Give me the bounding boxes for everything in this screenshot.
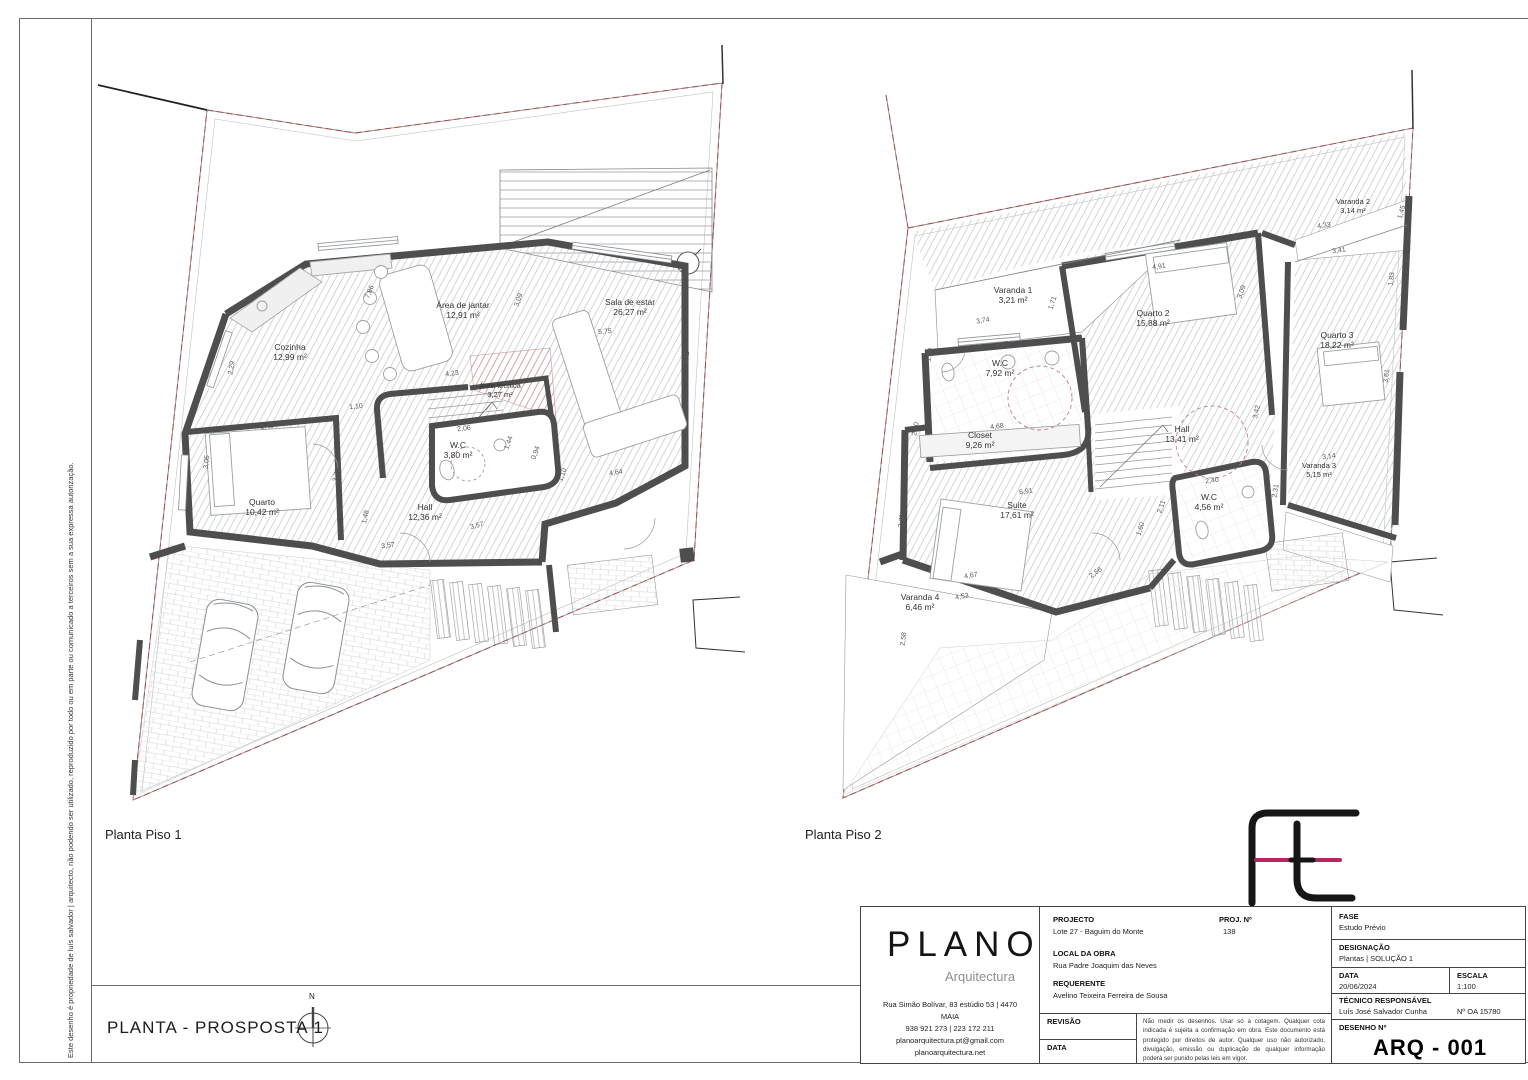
room-label: Hall12,36 m² — [408, 502, 442, 522]
data2-value: 20/06/2024 — [1339, 982, 1377, 991]
room-label: W.C4,56 m² — [1195, 492, 1224, 512]
room-label: Hall13,41 m² — [1165, 424, 1199, 444]
room-label: Suite17,61 m² — [1000, 500, 1034, 520]
plan1-garage-paving — [133, 545, 430, 797]
fase-label: FASE — [1339, 912, 1359, 921]
local-value: Rua Padre Joaquim das Neves — [1053, 961, 1157, 970]
title-block: PLANO Arquitectura Rua Simão Bolívar, 83… — [860, 906, 1526, 1064]
designacao-value: Plantas | SOLUÇÃO 1 — [1339, 954, 1413, 963]
data2-label: DATA — [1339, 971, 1359, 980]
room-label: Área técnica3,27 m² — [479, 381, 521, 399]
local-label: LOCAL DA OBRA — [1053, 949, 1116, 958]
proj-no-value: 138 — [1223, 927, 1236, 936]
plan2-caption: Planta Piso 2 — [805, 827, 882, 842]
tecnico-label: TÉCNICO RESPONSÁVEL — [1339, 996, 1432, 1005]
room-label: Quarto 318,22 m² — [1320, 330, 1354, 350]
firm-logo-subtitle: Arquitectura — [945, 969, 1015, 984]
room-label: Varanda 35,15 m² — [1302, 461, 1336, 479]
drawing-number: ARQ - 001 — [1373, 1035, 1487, 1061]
desenho-label: DESENHO Nº — [1339, 1023, 1386, 1032]
designacao-label: DESIGNAÇÃO — [1339, 943, 1390, 952]
north-label: N — [309, 992, 315, 1001]
escala-value: 1:100 — [1457, 982, 1476, 991]
dimension-label: 5,11 — [683, 351, 691, 365]
room-label: Quarto10,42 m² — [245, 497, 279, 517]
oa-number: Nº OA 15780 — [1457, 1007, 1501, 1016]
dimension-label: 3,43 — [260, 423, 274, 431]
requerente-label: REQUERENTE — [1053, 979, 1105, 988]
copyright-side-note: Este desenho é propriedade de luís salva… — [66, 462, 75, 1058]
plan2-wc2-tiles — [1177, 466, 1268, 560]
projecto-value: Lote 27 - Baguim do Monte — [1053, 927, 1143, 936]
dimension-label: 1,10 — [349, 403, 363, 411]
dimension-label: 2,06 — [457, 425, 471, 433]
room-label: W.C7,92 m² — [986, 358, 1015, 378]
drawing-sheet: Este desenho é propriedade de luís salva… — [0, 0, 1528, 1080]
room-label: Varanda 46,46 m² — [901, 592, 940, 612]
plan1-pillar — [679, 547, 695, 563]
studio-monogram — [1252, 813, 1356, 903]
room-label: Quarto 215,88 m² — [1136, 308, 1170, 328]
projecto-label: PROJECTO — [1053, 915, 1094, 924]
fase-value: Estudo Prévio — [1339, 923, 1386, 932]
escala-label: ESCALA — [1457, 971, 1488, 980]
room-label: Cozinha12,99 m² — [273, 342, 307, 362]
disclaimer-text: Não medir os desenhos. Usar só a cotagem… — [1143, 1017, 1325, 1063]
requerente-value: Avelino Teixeira Ferreira de Sousa — [1053, 991, 1167, 1000]
plan1-caption: Planta Piso 1 — [105, 827, 182, 842]
room-label: Área de jantar12,91 m² — [436, 300, 489, 320]
revisao-label: REVISÃO — [1047, 1017, 1081, 1026]
dimension-label: 5,75 — [598, 328, 612, 336]
room-label: Varanda 13,21 m² — [994, 285, 1033, 305]
room-label: Closet9,26 m² — [966, 430, 995, 450]
tecnico-value: Luís José Salvador Cunha — [1339, 1007, 1427, 1016]
room-label: Varanda 23,14 m² — [1336, 197, 1370, 215]
room-label: W.C3,80 m² — [444, 440, 473, 460]
data-label: DATA — [1047, 1043, 1067, 1052]
room-label: Sala de estar26,27 m² — [605, 297, 655, 317]
firm-address: Rua Simão Bolívar, 83 estúdio 53 | 4470 … — [865, 999, 1035, 1059]
sheet-bottom-title: PLANTA - PROSPOSTA 1 — [107, 1018, 324, 1038]
plan1-paving-strips — [431, 555, 658, 649]
firm-logo-text: PLANO — [887, 925, 1041, 965]
proj-no-label: PROJ. Nº — [1219, 915, 1252, 924]
